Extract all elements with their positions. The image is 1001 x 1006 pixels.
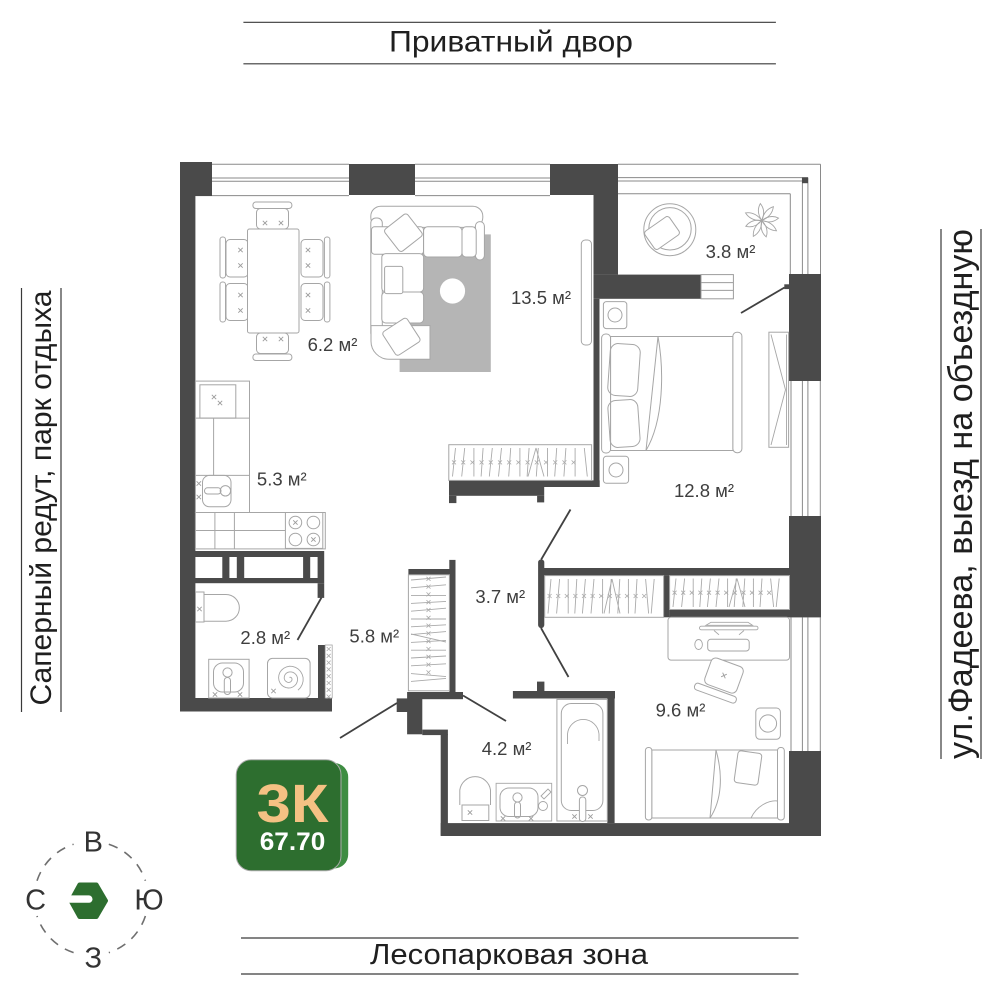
svg-text:67.70: 67.70 [260,828,326,856]
svg-text:5.3 м²: 5.3 м² [257,469,307,490]
svg-text:Лесопарковая зона: Лесопарковая зона [370,939,649,971]
svg-text:5.8 м²: 5.8 м² [349,626,399,647]
svg-text:ул.Фадеева, выезд на объездную: ул.Фадеева, выезд на объездную [942,229,980,759]
svg-text:Саперный редут, парк отдыха: Саперный редут, парк отдыха [25,290,58,705]
svg-text:6.2 м²: 6.2 м² [308,334,358,355]
svg-text:Приватный двор: Приватный двор [389,26,633,59]
svg-text:4.2 м²: 4.2 м² [482,738,532,759]
svg-text:9.6 м²: 9.6 м² [656,700,706,721]
svg-text:3.7 м²: 3.7 м² [475,586,525,607]
svg-text:3.8 м²: 3.8 м² [706,241,756,262]
svg-text:Ю: Ю [134,885,163,917]
svg-text:2.8 м²: 2.8 м² [240,627,290,648]
svg-text:З: З [85,943,103,975]
svg-text:12.8 м²: 12.8 м² [674,480,734,501]
svg-text:В: В [84,827,103,859]
svg-text:13.5 м²: 13.5 м² [511,287,571,308]
svg-text:3К: 3К [257,775,329,834]
svg-text:С: С [25,885,46,917]
